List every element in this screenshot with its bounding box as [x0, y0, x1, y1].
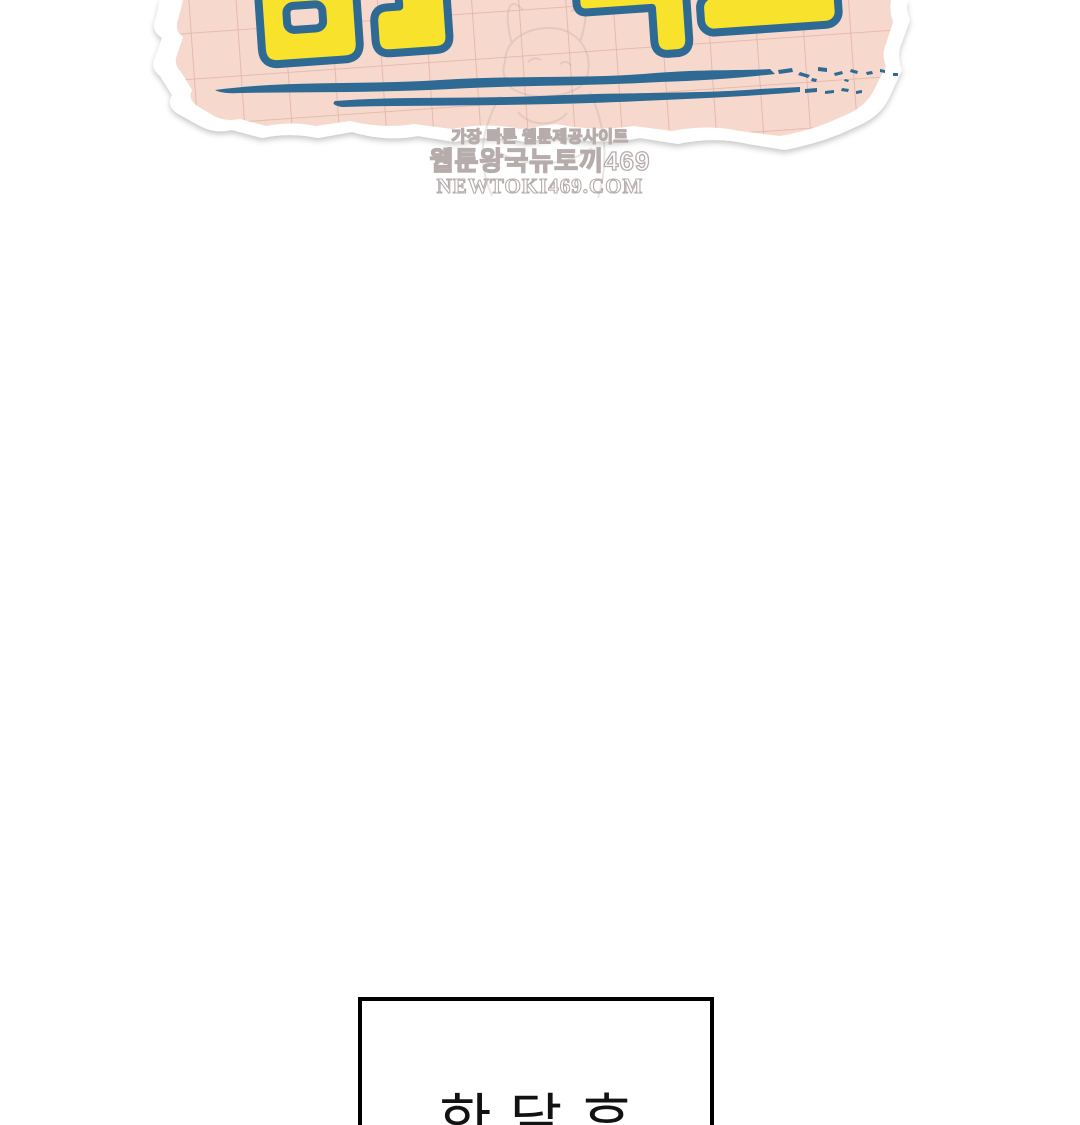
title-glyph-2 [369, 0, 450, 54]
title-glyph-4 [699, 0, 839, 33]
caption-box: 한 달 후 [358, 997, 714, 1125]
torn-paper-banner [0, 0, 1080, 240]
caption-text: 한 달 후 [362, 1075, 710, 1125]
title-glyph-1-hole [286, 4, 324, 30]
webtoon-page: 가장 빠른 웹툰제공사이트 웹툰왕국뉴토끼469 NEWTOKI469.COM … [0, 0, 1080, 1125]
